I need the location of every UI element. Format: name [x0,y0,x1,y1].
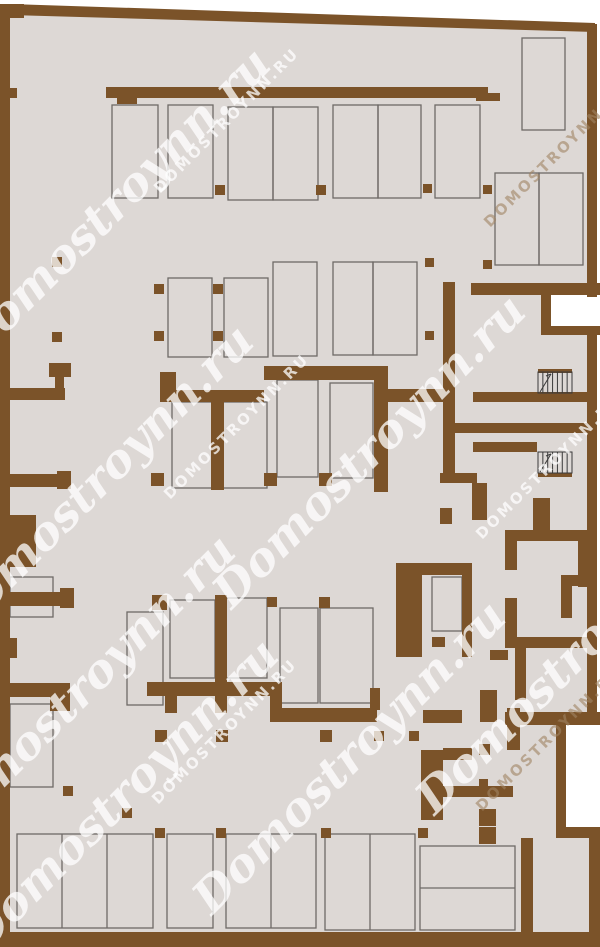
wall-segment [472,483,487,520]
column [52,332,62,342]
wall-segment [473,442,537,452]
wall-segment [106,87,488,98]
wall-segment [10,88,17,98]
wall-segment [440,473,477,483]
column [216,828,226,838]
column [267,597,277,607]
column [483,185,492,194]
wall-segment [476,93,500,101]
column [63,786,73,796]
floor-plan-page: Domostroynn.ruDomostroynn.ruDomostroynn.… [0,0,600,947]
wall-segment [396,563,422,657]
wall-segment [10,388,65,400]
wall-segment [117,98,137,104]
wall-segment [60,588,74,608]
wall-segment [10,638,17,658]
column [264,473,277,486]
column [483,260,492,269]
column [418,828,428,838]
wall-segment [587,24,597,297]
wall-segment [556,827,600,838]
wall-segment [561,586,572,618]
column [425,258,434,267]
wall-segment [533,498,550,532]
wall-segment [505,530,590,541]
wall-segment [589,836,600,947]
exterior-notch [566,725,600,827]
column [154,284,164,294]
wall-segment [521,838,533,932]
column [425,331,434,340]
column [423,184,432,193]
column [154,331,164,341]
wall-segment [440,508,452,524]
column [321,828,331,838]
column [155,828,165,838]
wall-segment [490,650,508,660]
column [479,827,496,844]
wall-segment [561,575,590,586]
exterior-notch [551,295,600,326]
floor-plan-drawing: Domostroynn.ruDomostroynn.ruDomostroynn.… [0,0,600,947]
column [316,185,326,195]
wall-segment [0,932,600,947]
column [319,597,330,608]
column [213,284,223,294]
wall-segment [541,326,600,335]
column [151,473,164,486]
wall-segment [49,363,71,377]
column [215,185,225,195]
